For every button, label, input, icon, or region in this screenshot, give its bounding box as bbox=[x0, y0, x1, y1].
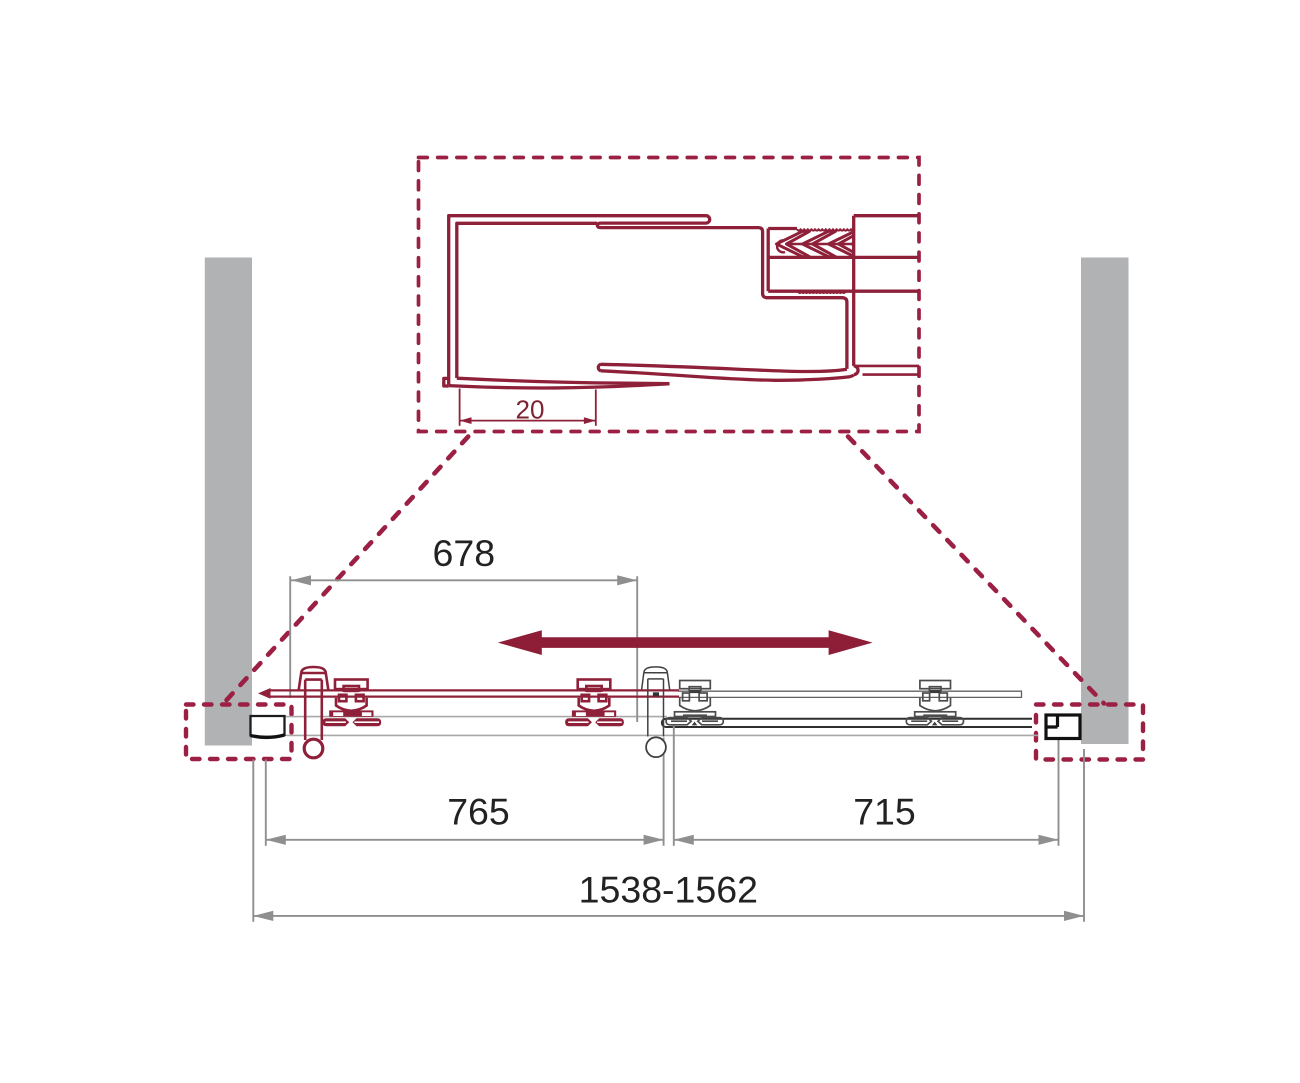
svg-text:1538-1562: 1538-1562 bbox=[579, 869, 758, 911]
svg-text:20: 20 bbox=[516, 395, 545, 425]
svg-text:715: 715 bbox=[853, 791, 916, 833]
svg-text:678: 678 bbox=[433, 532, 496, 574]
svg-text:765: 765 bbox=[447, 791, 510, 833]
